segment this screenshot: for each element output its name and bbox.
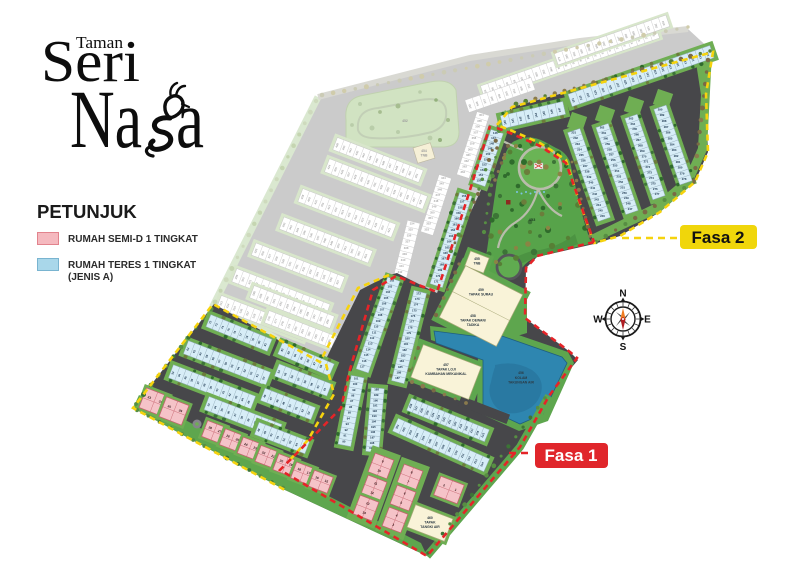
svg-text:108: 108 [378, 313, 383, 317]
svg-text:198: 198 [370, 441, 375, 445]
svg-text:262: 262 [600, 126, 605, 130]
svg-text:355: 355 [477, 119, 482, 123]
svg-text:354: 354 [479, 113, 484, 117]
svg-text:156: 156 [462, 194, 467, 198]
svg-text:271: 271 [644, 160, 649, 164]
svg-text:340: 340 [401, 258, 406, 262]
svg-text:237: 237 [583, 164, 588, 168]
svg-text:Fasa 2: Fasa 2 [692, 228, 745, 247]
svg-text:188: 188 [374, 388, 379, 392]
svg-text:169: 169 [438, 268, 443, 272]
svg-text:459: 459 [478, 288, 484, 292]
svg-text:264: 264 [631, 122, 636, 126]
svg-text:350: 350 [430, 210, 435, 214]
svg-text:98: 98 [351, 393, 355, 397]
svg-text:247: 247 [628, 207, 633, 211]
svg-text:106: 106 [382, 302, 387, 306]
svg-text:TNB: TNB [421, 154, 429, 158]
svg-text:257: 257 [609, 153, 614, 157]
svg-text:277: 277 [655, 192, 660, 196]
svg-text:363: 363 [462, 165, 467, 169]
svg-text:KOLAM: KOLAM [515, 376, 528, 380]
svg-text:351: 351 [428, 216, 433, 220]
svg-text:112: 112 [370, 336, 375, 340]
svg-text:456: 456 [518, 371, 524, 375]
svg-text:346: 346 [437, 187, 442, 191]
svg-text:270: 270 [642, 154, 647, 158]
svg-text:103: 103 [388, 284, 393, 288]
svg-text:97: 97 [350, 399, 354, 403]
svg-text:364: 364 [460, 170, 465, 174]
svg-text:288: 288 [662, 119, 667, 123]
svg-text:347: 347 [435, 193, 440, 197]
svg-text:281: 281 [676, 160, 681, 164]
svg-text:360: 360 [468, 147, 473, 151]
svg-text:358: 358 [472, 136, 477, 140]
svg-text:265: 265 [632, 127, 637, 131]
svg-text:452: 452 [402, 119, 408, 123]
svg-text:339: 339 [402, 252, 407, 256]
svg-text:110: 110 [374, 325, 379, 329]
svg-text:117: 117 [360, 365, 365, 369]
svg-text:167: 167 [441, 257, 446, 261]
svg-text:TAKUNGAN AIR: TAKUNGAN AIR [508, 381, 534, 385]
svg-text:154: 154 [478, 173, 483, 177]
svg-text:TAPAK DEWAN/: TAPAK DEWAN/ [460, 319, 486, 323]
svg-text:457: 457 [443, 363, 449, 367]
svg-text:246: 246 [600, 214, 605, 218]
svg-text:273: 273 [647, 171, 652, 175]
svg-text:180: 180 [405, 337, 410, 341]
svg-text:280: 280 [678, 166, 683, 170]
svg-text:289: 289 [660, 113, 665, 117]
svg-text:274: 274 [649, 176, 654, 180]
svg-text:157: 157 [460, 200, 465, 204]
svg-text:341: 341 [399, 264, 404, 268]
svg-text:337: 337 [405, 240, 410, 244]
svg-text:152: 152 [482, 163, 487, 167]
svg-text:163: 163 [449, 234, 454, 238]
svg-text:261: 261 [602, 131, 607, 135]
svg-text:171: 171 [434, 279, 439, 283]
svg-text:460: 460 [427, 516, 433, 520]
svg-text:335: 335 [408, 228, 413, 232]
svg-text:244: 244 [596, 203, 601, 207]
svg-text:357: 357 [473, 130, 478, 134]
svg-text:115: 115 [364, 353, 369, 357]
svg-text:191: 191 [373, 404, 378, 408]
svg-text:176: 176 [411, 314, 416, 318]
svg-text:Na: Na [70, 73, 142, 165]
svg-text:174: 174 [413, 303, 418, 307]
svg-text:104: 104 [386, 290, 391, 294]
svg-text:269: 269 [640, 149, 645, 153]
svg-text:272: 272 [645, 165, 650, 169]
svg-text:259: 259 [605, 142, 610, 146]
svg-text:177: 177 [409, 320, 414, 324]
svg-text:455: 455 [474, 257, 480, 261]
svg-text:287: 287 [664, 125, 669, 129]
svg-text:189: 189 [374, 393, 379, 397]
svg-text:W: W [593, 315, 603, 326]
svg-text:239: 239 [587, 175, 592, 179]
svg-text:235: 235 [579, 153, 584, 157]
svg-text:268: 268 [638, 143, 643, 147]
svg-text:95: 95 [348, 411, 352, 415]
svg-text:114: 114 [366, 347, 371, 351]
svg-text:TAPAK SURAU: TAPAK SURAU [469, 293, 494, 297]
svg-text:197: 197 [370, 436, 375, 440]
svg-text:N: N [619, 289, 626, 300]
svg-text:164: 164 [447, 240, 452, 244]
svg-text:E: E [644, 315, 651, 326]
svg-text:161: 161 [452, 222, 457, 226]
svg-text:116: 116 [362, 359, 367, 363]
svg-text:193: 193 [372, 414, 377, 418]
svg-text:168: 168 [439, 262, 444, 266]
svg-text:113: 113 [368, 342, 373, 346]
svg-text:345: 345 [439, 182, 444, 186]
svg-text:Fasa 1: Fasa 1 [545, 446, 598, 465]
svg-text:148: 148 [489, 141, 494, 145]
svg-text:170: 170 [436, 274, 441, 278]
svg-text:162: 162 [450, 228, 455, 232]
svg-text:TADIKA: TADIKA [467, 323, 480, 327]
svg-text:353: 353 [424, 227, 429, 231]
svg-text:194: 194 [371, 420, 376, 424]
svg-text:283: 283 [672, 148, 677, 152]
svg-text:TNB: TNB [474, 262, 482, 266]
svg-text:109: 109 [376, 319, 381, 323]
svg-text:181: 181 [404, 342, 409, 346]
svg-text:166: 166 [443, 251, 448, 255]
svg-text:242: 242 [592, 192, 597, 196]
svg-text:278: 278 [682, 177, 687, 181]
svg-text:458: 458 [470, 314, 476, 318]
svg-text:362: 362 [464, 159, 469, 163]
svg-text:90: 90 [342, 439, 346, 443]
svg-text:172: 172 [416, 291, 421, 295]
svg-text:258: 258 [607, 147, 612, 151]
svg-text:282: 282 [674, 154, 679, 158]
svg-text:KUMBAHAN MEKANIKAL: KUMBAHAN MEKANIKAL [425, 372, 466, 376]
svg-text:240: 240 [589, 181, 594, 185]
svg-text:238: 238 [585, 170, 590, 174]
svg-text:236: 236 [581, 158, 586, 162]
svg-text:107: 107 [380, 307, 385, 311]
svg-text:184: 184 [399, 359, 404, 363]
svg-text:256: 256 [611, 158, 616, 162]
svg-text:231: 231 [571, 131, 576, 135]
svg-text:100: 100 [353, 382, 358, 386]
svg-text:TANGKI AIR: TANGKI AIR [420, 525, 440, 529]
svg-text:263: 263 [629, 116, 634, 120]
svg-text:158: 158 [458, 205, 463, 209]
svg-text:253: 253 [617, 174, 622, 178]
svg-text:178: 178 [408, 325, 413, 329]
svg-text:232: 232 [573, 136, 578, 140]
svg-text:TAPAK: TAPAK [424, 521, 436, 525]
svg-text:192: 192 [372, 409, 377, 413]
svg-text:338: 338 [404, 246, 409, 250]
svg-text:241: 241 [591, 186, 596, 190]
svg-text:TAPAK LOJI: TAPAK LOJI [436, 368, 456, 372]
svg-text:250: 250 [622, 191, 627, 195]
svg-text:94: 94 [347, 416, 351, 420]
svg-text:101: 101 [354, 376, 359, 380]
svg-text:348: 348 [434, 199, 439, 203]
svg-text:352: 352 [426, 222, 431, 226]
svg-text:105: 105 [384, 296, 389, 300]
svg-text:342: 342 [398, 270, 403, 274]
svg-text:183: 183 [401, 353, 406, 357]
svg-text:93: 93 [346, 422, 350, 426]
svg-text:187: 187 [395, 376, 400, 380]
svg-text:266: 266 [634, 133, 639, 137]
svg-text:249: 249 [624, 196, 629, 200]
svg-text:454: 454 [421, 149, 427, 153]
svg-text:286: 286 [666, 131, 671, 135]
svg-text:359: 359 [470, 142, 475, 146]
svg-text:91: 91 [343, 434, 347, 438]
svg-text:179: 179 [406, 331, 411, 335]
svg-text:334: 334 [410, 222, 415, 226]
svg-text:275: 275 [651, 181, 656, 185]
svg-text:245: 245 [598, 208, 603, 212]
svg-text:165: 165 [445, 245, 450, 249]
svg-text:279: 279 [680, 171, 685, 175]
svg-text:260: 260 [603, 136, 608, 140]
svg-text:252: 252 [618, 180, 623, 184]
svg-text:173: 173 [415, 297, 420, 301]
svg-text:349: 349 [432, 205, 437, 209]
svg-text:233: 233 [575, 142, 580, 146]
svg-text:453: 453 [529, 217, 536, 222]
svg-text:92: 92 [345, 428, 349, 432]
svg-text:290: 290 [658, 107, 663, 111]
svg-text:243: 243 [594, 197, 599, 201]
svg-text:111: 111 [372, 330, 377, 334]
svg-text:276: 276 [653, 187, 658, 191]
svg-text:284: 284 [670, 142, 675, 146]
svg-text:150: 150 [486, 152, 491, 156]
svg-text:285: 285 [668, 136, 673, 140]
svg-text:182: 182 [402, 348, 407, 352]
svg-text:344: 344 [441, 176, 446, 180]
svg-text:251: 251 [620, 185, 625, 189]
svg-text:255: 255 [613, 164, 618, 168]
svg-text:234: 234 [577, 147, 582, 151]
svg-text:96: 96 [349, 405, 353, 409]
svg-text:160: 160 [454, 217, 459, 221]
svg-text:254: 254 [615, 169, 620, 173]
svg-text:195: 195 [371, 425, 376, 429]
svg-text:196: 196 [371, 430, 376, 434]
svg-text:185: 185 [398, 365, 403, 369]
svg-text:248: 248 [626, 202, 631, 206]
svg-text:186: 186 [397, 370, 402, 374]
svg-text:356: 356 [475, 125, 480, 129]
svg-text:190: 190 [373, 398, 378, 402]
svg-text:S: S [620, 342, 627, 353]
svg-text:175: 175 [412, 308, 417, 312]
svg-text:99: 99 [352, 388, 356, 392]
svg-text:267: 267 [636, 138, 641, 142]
svg-text:336: 336 [407, 234, 412, 238]
svg-text:159: 159 [456, 211, 461, 215]
svg-text:361: 361 [466, 153, 471, 157]
